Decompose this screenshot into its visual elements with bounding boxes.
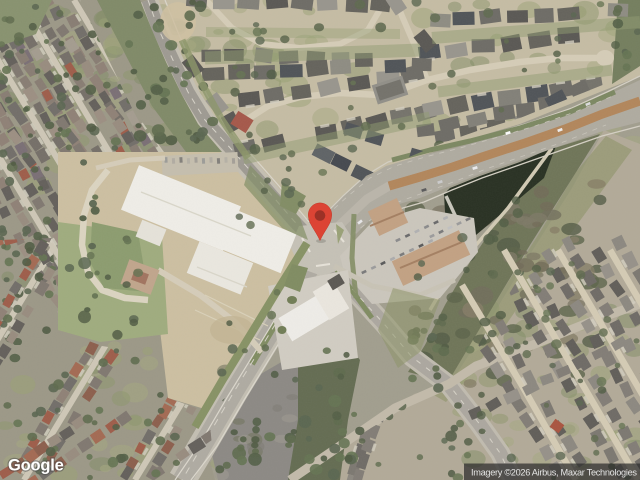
svg-text:Google: Google: [8, 457, 64, 475]
svg-text:Imagery ©2026 Airbus, Maxar Te: Imagery ©2026 Airbus, Maxar Technologies: [471, 468, 637, 478]
